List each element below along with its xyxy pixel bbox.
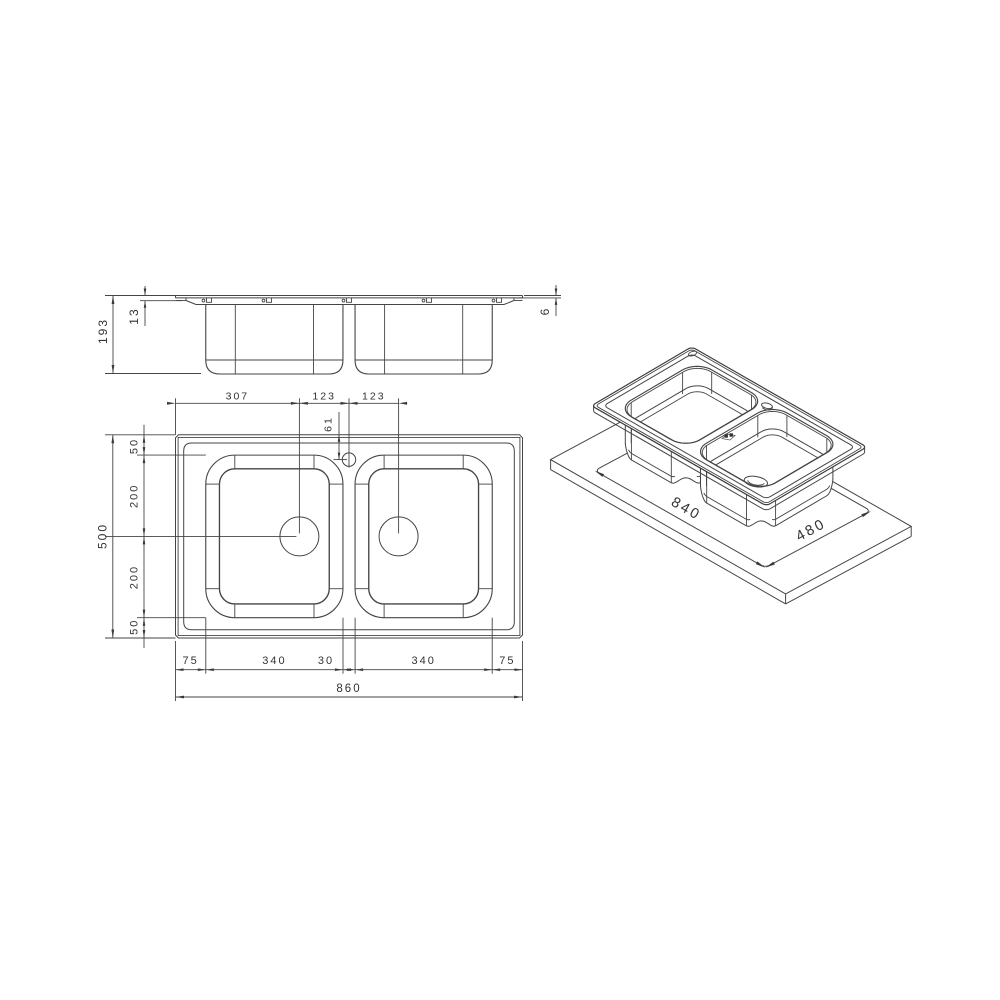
svg-text:200: 200 bbox=[129, 484, 141, 508]
svg-text:860: 860 bbox=[336, 683, 361, 695]
svg-text:193: 193 bbox=[96, 318, 110, 344]
svg-text:200: 200 bbox=[129, 565, 141, 589]
svg-text:6: 6 bbox=[538, 307, 552, 316]
svg-text:61: 61 bbox=[323, 416, 335, 432]
svg-text:340: 340 bbox=[412, 655, 436, 667]
svg-text:50: 50 bbox=[129, 619, 141, 635]
svg-text:123: 123 bbox=[312, 391, 336, 403]
svg-text:75: 75 bbox=[182, 655, 198, 667]
svg-text:30: 30 bbox=[318, 655, 334, 667]
svg-text:340: 340 bbox=[262, 655, 286, 667]
svg-text:307: 307 bbox=[226, 391, 250, 403]
svg-text:50: 50 bbox=[129, 438, 141, 454]
svg-text:123: 123 bbox=[362, 391, 386, 403]
svg-text:13: 13 bbox=[127, 307, 141, 324]
svg-text:75: 75 bbox=[499, 655, 515, 667]
